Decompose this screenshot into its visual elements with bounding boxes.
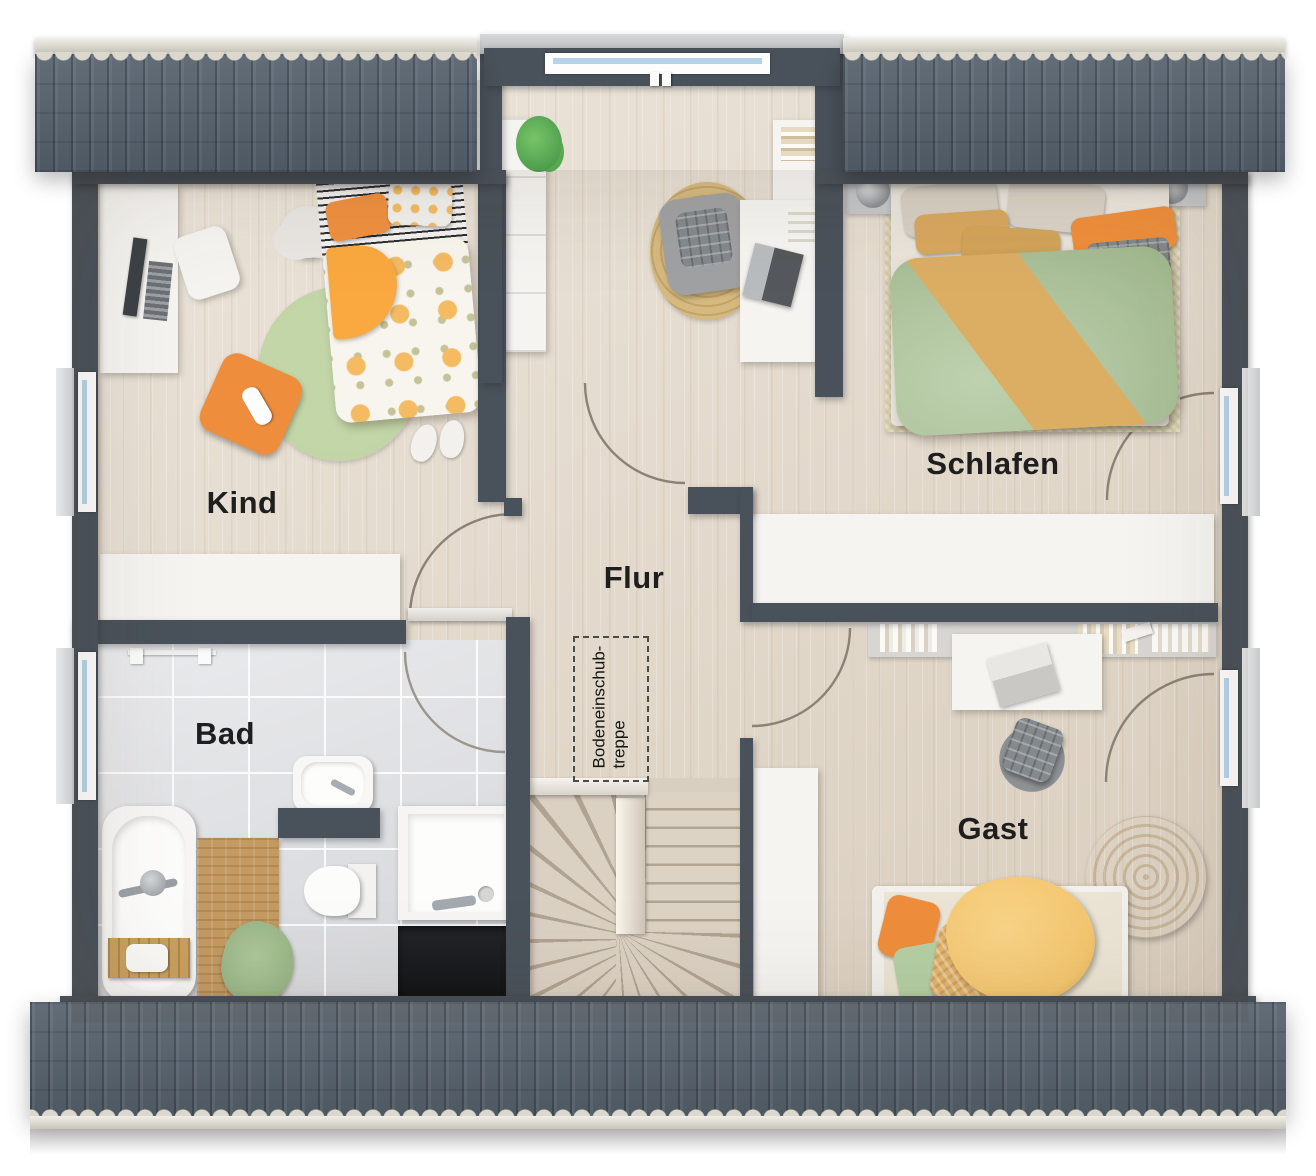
sideboard bbox=[100, 554, 400, 620]
window-left-kind bbox=[78, 372, 96, 512]
wardrobe bbox=[754, 768, 818, 1002]
window-glass bbox=[1224, 678, 1229, 778]
wall-exterior-left bbox=[72, 170, 98, 1010]
wall-flur-east bbox=[740, 487, 753, 622]
towel-hook bbox=[130, 648, 143, 664]
floor-plan: Bodeneinschub- treppe Kind Schlafen Flur… bbox=[0, 0, 1316, 1176]
bodeneinschubtreppe-label: Bodeneinschub- treppe bbox=[590, 646, 631, 769]
window-sill-left-lower bbox=[56, 648, 74, 804]
book-row bbox=[1152, 624, 1210, 652]
roof-scallop-right bbox=[843, 52, 1285, 66]
stair-newel-rail bbox=[616, 798, 645, 934]
book-stack bbox=[781, 127, 817, 161]
door-leaf-kind bbox=[408, 608, 512, 621]
room-label-bad: Bad bbox=[195, 716, 255, 752]
window-sill-right-lower bbox=[1242, 648, 1260, 808]
roof-bottom bbox=[30, 1002, 1286, 1116]
wall-nub bbox=[504, 498, 522, 516]
book-stack bbox=[788, 206, 817, 246]
child-bed bbox=[315, 164, 482, 424]
armchair-cushion bbox=[674, 207, 733, 270]
towel-hook bbox=[198, 648, 211, 664]
window-right-schlafen bbox=[1220, 388, 1238, 504]
roof-top-left bbox=[35, 54, 477, 172]
wall-stairhall-east bbox=[815, 46, 843, 397]
window-handle bbox=[662, 72, 671, 86]
roof-bottom-eave bbox=[30, 1116, 1286, 1129]
room-label-gast: Gast bbox=[958, 811, 1029, 847]
wall-exterior-top-right bbox=[815, 170, 1248, 184]
stair-straight-treads bbox=[646, 792, 746, 944]
wall-schlafen-gast-divider bbox=[752, 603, 1218, 622]
stair-lower-winder-treads bbox=[616, 930, 746, 1002]
potted-plant bbox=[516, 116, 562, 172]
toilet bbox=[304, 866, 360, 916]
towel-on-tray bbox=[126, 944, 168, 972]
pillow bbox=[387, 181, 452, 227]
wall-bad-north bbox=[72, 620, 406, 644]
wall-gast-west bbox=[740, 738, 753, 1002]
window-glass bbox=[1224, 396, 1229, 496]
roof-scallop-left bbox=[35, 52, 477, 66]
window-sill-left-upper bbox=[56, 368, 74, 516]
room-label-kind: Kind bbox=[207, 485, 278, 521]
staircase bbox=[528, 778, 746, 1002]
wall-exterior-top-left bbox=[72, 170, 506, 184]
roof-bottom-shadow bbox=[30, 1129, 1286, 1155]
window-glass bbox=[82, 660, 87, 792]
room-label-flur: Flur bbox=[604, 560, 665, 596]
window-sill-right-upper bbox=[1242, 368, 1260, 516]
wall-stairhall-west bbox=[480, 46, 502, 383]
floor-niche bbox=[398, 926, 510, 1002]
window-right-gast bbox=[1220, 670, 1238, 786]
wall-bad-east bbox=[506, 617, 530, 1002]
duvet bbox=[889, 245, 1180, 438]
window-glass bbox=[82, 380, 87, 504]
sideboard-long bbox=[752, 514, 1214, 604]
window-dormer bbox=[545, 53, 770, 74]
book-row bbox=[880, 624, 938, 652]
handheld-shower-head bbox=[140, 870, 166, 896]
shower-drain bbox=[478, 886, 494, 902]
window-handle bbox=[650, 72, 659, 86]
room-label-schlafen: Schlafen bbox=[926, 446, 1059, 482]
wall-exterior-right bbox=[1222, 170, 1248, 1010]
toilet-partition-wall bbox=[278, 808, 380, 838]
window-left-bad bbox=[78, 652, 96, 800]
window-glass bbox=[553, 58, 762, 64]
roof-top-right bbox=[843, 54, 1285, 172]
